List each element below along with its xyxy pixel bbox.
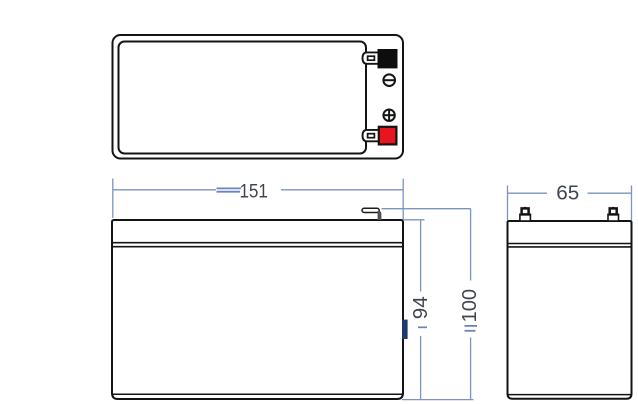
svg-text:100: 100: [459, 289, 481, 322]
svg-text:94: 94: [410, 296, 432, 319]
svg-text:65: 65: [556, 183, 579, 205]
svg-text:151: 151: [239, 181, 268, 203]
